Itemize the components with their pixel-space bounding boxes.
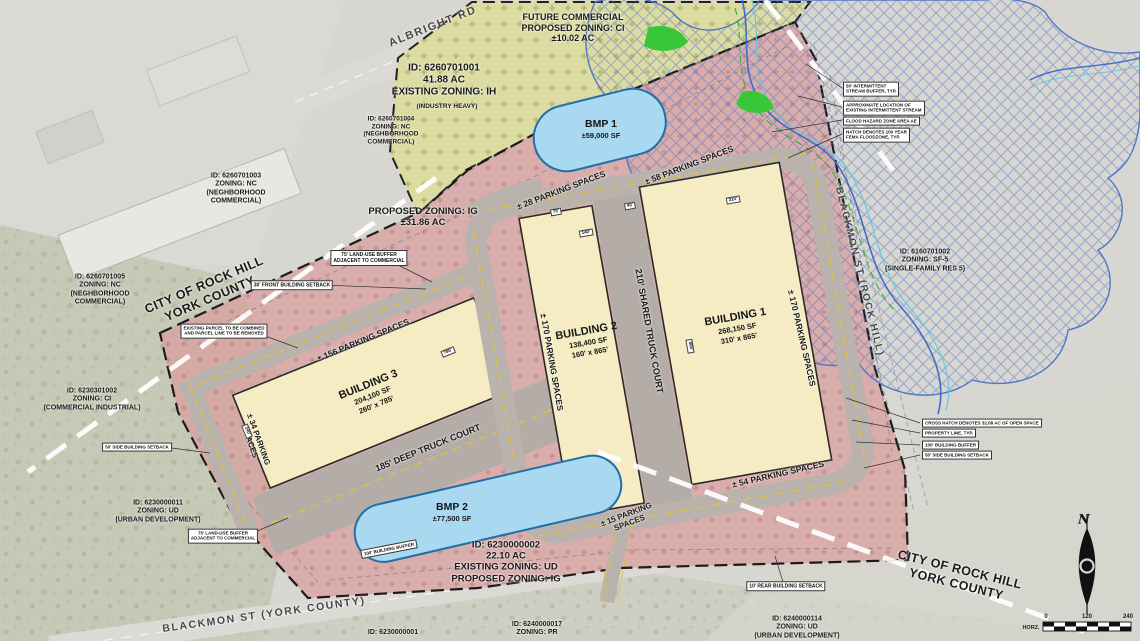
setback-rear-tag: 10' REAR BUILDING SETBACK — [746, 581, 825, 591]
buffer75-south-tag: 75' LAND-USE BUFFER ADJACENT TO COMMERCI… — [188, 529, 258, 544]
parcel-6260701004-label: ID: 6260701004 ZONING: NC (NEGHBORHOOD C… — [364, 116, 419, 147]
bmp2-label: BMP 2 ±77,500 SF — [433, 501, 472, 523]
scale-bar — [1043, 622, 1131, 631]
parcel-6260701005-label: ID: 6260701005 ZONING: NC (NEGHBORHOOD C… — [70, 274, 129, 307]
callout-building-buffer: 100' BUILDING BUFFER — [922, 441, 979, 450]
scale-tick-120: 120 — [1082, 614, 1092, 620]
setback-front-tag: 30' FRONT BUILDING SETBACK — [251, 280, 333, 290]
callout-intermittent-stream: APPROXIMATE LOCATION OF EXISTING INTERMI… — [843, 101, 925, 116]
callout-property-line: PROPERTY LINE, TYP. — [922, 429, 976, 438]
proposed-zoning-ig-label: PROPOSED ZONING: IG ±31.86 AC — [368, 206, 477, 228]
parcel-6160701002-label: ID: 6160701002 ZONING: SF-5 (SINGLE-FAMI… — [885, 249, 965, 274]
setback-side-left-tag: 50' SIDE BUILDING SETBACK — [102, 443, 172, 452]
main-parcel-label: ID: 6230000002 22.10 AC EXISTING ZONING:… — [451, 540, 560, 585]
callout-open-space: CROSS HATCH DENOTES 32.08 AC OF OPEN SPA… — [922, 419, 1042, 428]
bmp1-label: BMP 1 ±59,000 SF — [582, 118, 621, 140]
north-label: N — [1078, 513, 1090, 528]
parcel-6260701003-label: ID: 6260701003 ZONING: NC (NEGHBORHOOD C… — [206, 173, 265, 206]
callout-fema-floodzone: HATCH DENOTES 100 YEAR FEMA FLOODZONE, T… — [843, 128, 910, 143]
scale-tick-0: 0 — [1044, 614, 1047, 620]
future-commercial-label: FUTURE COMMERCIAL PROPOSED ZONING: CI ±1… — [521, 12, 624, 44]
combine-note-tag: EXISTING PARCEL TO BE COMBINED AND PARCE… — [180, 324, 267, 339]
callout-side-setback: 50' SIDE BUILDING SETBACK — [922, 451, 992, 460]
scale-horz-label: HORZ. — [1022, 625, 1039, 631]
parcel-ih-label: ID: 6260701001 41.88 AC EXISTING ZONING:… — [392, 62, 496, 97]
parcel-ih-sublabel: (INDUSTRY HEAVY) — [417, 103, 478, 111]
buffer75-north-tag: 75' LAND-USE BUFFER ADJACENT TO COMMERCI… — [330, 250, 407, 266]
scale-tick-240: 240 — [1123, 614, 1133, 620]
parcel-6230000001-label: ID: 6230000001 — [368, 629, 418, 637]
parcel-6230000011-label: ID: 6230000011 ZONING: UD (URBAN DEVELOP… — [115, 500, 200, 525]
parcel-6240000017-label: ID: 6240000017 ZONING: PR — [512, 621, 562, 638]
parcel-6230301002-label: ID: 6230301002 ZONING: CI (COMMERCIAL IN… — [43, 388, 140, 413]
callout-stream-buffer: 50' INTERMITTENT STREAM BUFFER, TYP. — [843, 82, 899, 97]
callout-flood-hazard: FLOOD HAZARD ZONE AREA AE — [843, 117, 920, 126]
parcel-6240000114-label: ID: 6240000114 ZONING: UD (URBAN DEVELOP… — [754, 616, 839, 641]
site-plan: ALBRIGHT RD FUTURE COMMERCIAL PROPOSED Z… — [0, 0, 1140, 641]
